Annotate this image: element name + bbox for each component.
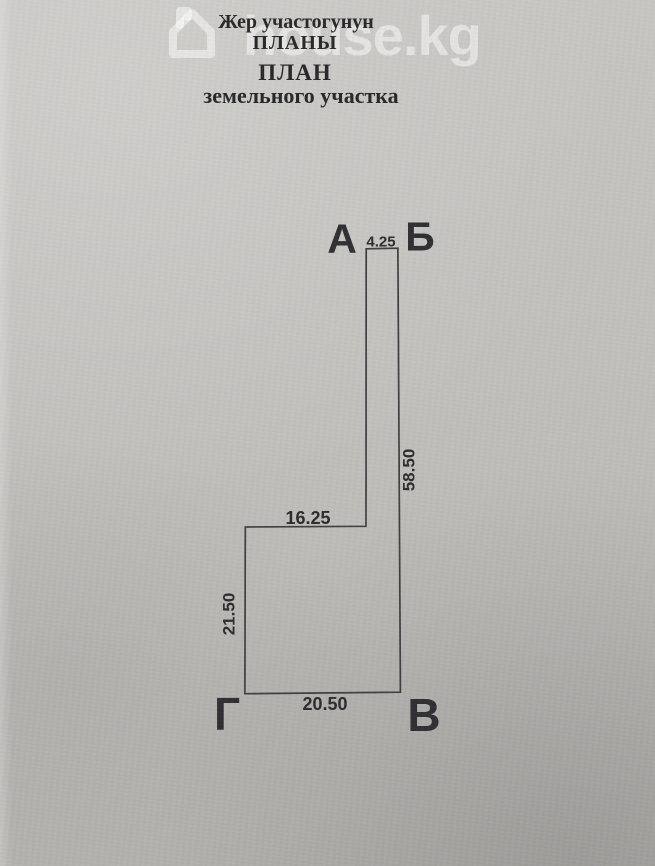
dimension-ledge: 16.25 xyxy=(285,509,330,527)
scanned-land-plan-document: house.kg Жер участогунун ПЛАНЫ ПЛАН земе… xyxy=(0,0,655,866)
vertex-label-v: В xyxy=(407,692,440,738)
dimension-right-bv: 58.50 xyxy=(401,449,418,492)
plot-outline-drawing xyxy=(0,0,655,866)
vertex-label-g: Г xyxy=(214,691,240,737)
plot-boundary-path xyxy=(245,248,401,694)
vertex-label-b: Б xyxy=(405,217,434,258)
vertex-label-a: А xyxy=(327,219,357,260)
dimension-left-side: 21.50 xyxy=(221,593,238,636)
dimension-top-ab: 4.25 xyxy=(366,235,395,250)
dimension-bottom-gv: 20.50 xyxy=(302,695,347,713)
